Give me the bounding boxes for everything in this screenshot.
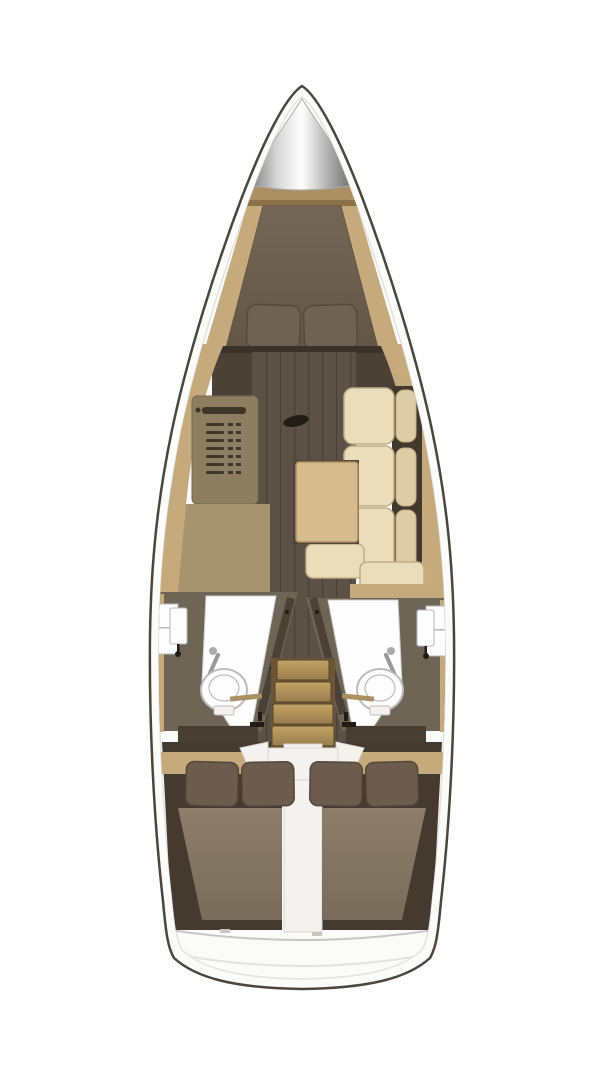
port-head-faucet	[175, 651, 181, 657]
settee-backrest-cushion	[396, 510, 416, 570]
companionway-step	[277, 660, 329, 680]
aft-cabin-door-latch	[258, 712, 262, 721]
aft-cabin-door-latch	[250, 722, 264, 727]
transom-notch	[312, 932, 322, 936]
galley-counter	[178, 504, 270, 592]
companionway-step	[273, 704, 333, 724]
starboard-head-sink	[417, 610, 434, 646]
aft-pillow	[365, 761, 418, 806]
companionway-step	[275, 682, 331, 702]
stove-knob	[196, 408, 201, 413]
settee-backrest-cushion	[396, 390, 416, 442]
vberth-pillow-starboard	[303, 304, 358, 350]
sailboat-floor-plan	[0, 0, 604, 1080]
aft-pillow	[242, 762, 295, 807]
port-head-faucet-stem	[177, 644, 180, 652]
port-head-toilet-seat	[214, 706, 234, 715]
settee-foot-cushion	[306, 544, 364, 578]
port-head-door-hinge	[285, 610, 289, 614]
vberth-pillow-port	[246, 304, 301, 350]
aft-pillow	[310, 762, 363, 807]
aft-cabin-door-latch	[342, 722, 356, 727]
transom-notch	[220, 929, 230, 933]
boat-layout-canvas	[0, 0, 604, 1080]
anchor-locker	[245, 99, 359, 190]
starboard-head-toilet-seat	[370, 706, 390, 715]
saloon-table	[296, 462, 358, 542]
starboard-head-door-hinge	[315, 610, 319, 614]
aft-cabin-door-latch	[344, 712, 348, 721]
settee-seat-cushion	[344, 388, 394, 444]
companionway-step	[272, 726, 334, 746]
stove-handle-bar	[202, 407, 246, 414]
settee-backrest-cushion	[396, 448, 416, 506]
starboard-head-faucet	[423, 653, 429, 659]
port-head-shower-head	[209, 647, 217, 655]
starboard-head-shower-head	[387, 647, 395, 655]
starboard-head-faucet-stem	[425, 646, 428, 654]
port-head-sink	[170, 608, 187, 644]
aft-pillow	[185, 761, 238, 806]
